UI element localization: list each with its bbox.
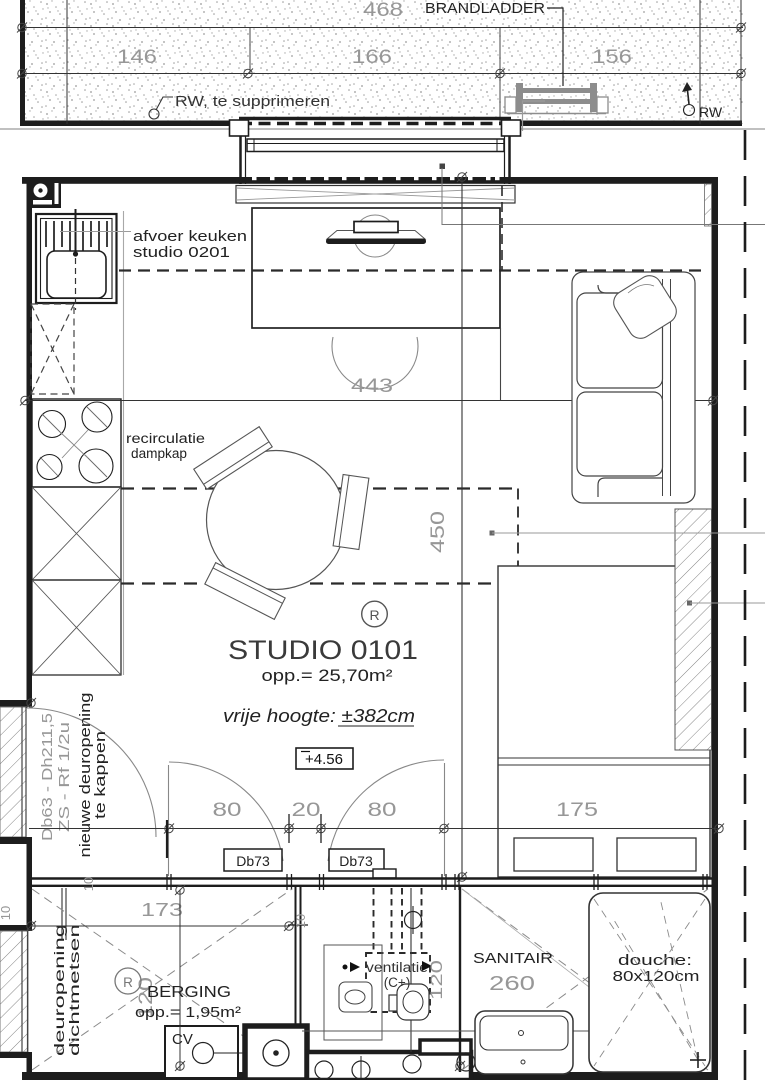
svg-text:156: 156 bbox=[592, 47, 632, 68]
svg-text:175: 175 bbox=[556, 800, 598, 821]
svg-text:120: 120 bbox=[427, 960, 446, 1000]
svg-text:BRANDLADDER: BRANDLADDER bbox=[425, 1, 545, 17]
svg-text:opp.= 25,70m²: opp.= 25,70m² bbox=[262, 667, 394, 685]
svg-text:BERGING: BERGING bbox=[147, 984, 231, 1001]
svg-text:te kappen: te kappen bbox=[93, 731, 109, 819]
svg-text:260: 260 bbox=[489, 973, 535, 995]
svg-text:vrije hoogte: ±382cm: vrije hoogte: ±382cm bbox=[223, 706, 415, 726]
svg-text:opp.= 1,95m²: opp.= 1,95m² bbox=[135, 1004, 241, 1021]
svg-text:10: 10 bbox=[81, 877, 96, 891]
svg-text:(C+): (C+) bbox=[384, 975, 411, 990]
svg-text:SANITAIR: SANITAIR bbox=[473, 951, 553, 967]
svg-text:R: R bbox=[123, 975, 133, 990]
svg-text:STUDIO 0101: STUDIO 0101 bbox=[228, 635, 418, 665]
svg-text:R: R bbox=[369, 607, 379, 623]
svg-text:studio 0201: studio 0201 bbox=[133, 244, 230, 261]
svg-text:dampkap: dampkap bbox=[131, 446, 187, 461]
svg-text:afvoer keuken: afvoer keuken bbox=[133, 228, 247, 245]
svg-text:Db73: Db73 bbox=[236, 853, 270, 869]
svg-text:dichtmetsen: dichtmetsen bbox=[66, 924, 82, 1056]
svg-text:166: 166 bbox=[352, 47, 392, 68]
svg-text:146: 146 bbox=[117, 47, 157, 68]
svg-text:CV: CV bbox=[172, 1031, 193, 1048]
svg-text:Db73: Db73 bbox=[339, 853, 373, 869]
svg-text:468: 468 bbox=[363, 0, 403, 21]
svg-text:ventilatie: ventilatie bbox=[366, 960, 428, 975]
svg-text:80: 80 bbox=[368, 800, 397, 821]
svg-text:douche:: douche: bbox=[618, 953, 692, 969]
svg-text:ZS - Rf 1/2u: ZS - Rf 1/2u bbox=[57, 722, 73, 832]
svg-text:80x120cm: 80x120cm bbox=[613, 969, 700, 985]
svg-text:10: 10 bbox=[293, 914, 308, 928]
svg-text:10: 10 bbox=[0, 906, 13, 920]
svg-text:RW, te supprimeren: RW, te supprimeren bbox=[175, 94, 330, 110]
svg-text:443: 443 bbox=[351, 376, 393, 397]
svg-text:Db63 - Dh211,5: Db63 - Dh211,5 bbox=[40, 713, 56, 841]
svg-text:173: 173 bbox=[141, 900, 183, 920]
svg-text:recirculatie: recirculatie bbox=[126, 431, 205, 446]
svg-text:deuropening: deuropening bbox=[51, 924, 67, 1056]
svg-text:80: 80 bbox=[213, 800, 242, 821]
svg-text:RW: RW bbox=[699, 104, 723, 120]
svg-text:+4.56: +4.56 bbox=[305, 751, 343, 768]
svg-text:nieuwe deuropening: nieuwe deuropening bbox=[78, 693, 94, 858]
svg-text:20: 20 bbox=[292, 800, 321, 821]
svg-text:450: 450 bbox=[428, 511, 449, 553]
